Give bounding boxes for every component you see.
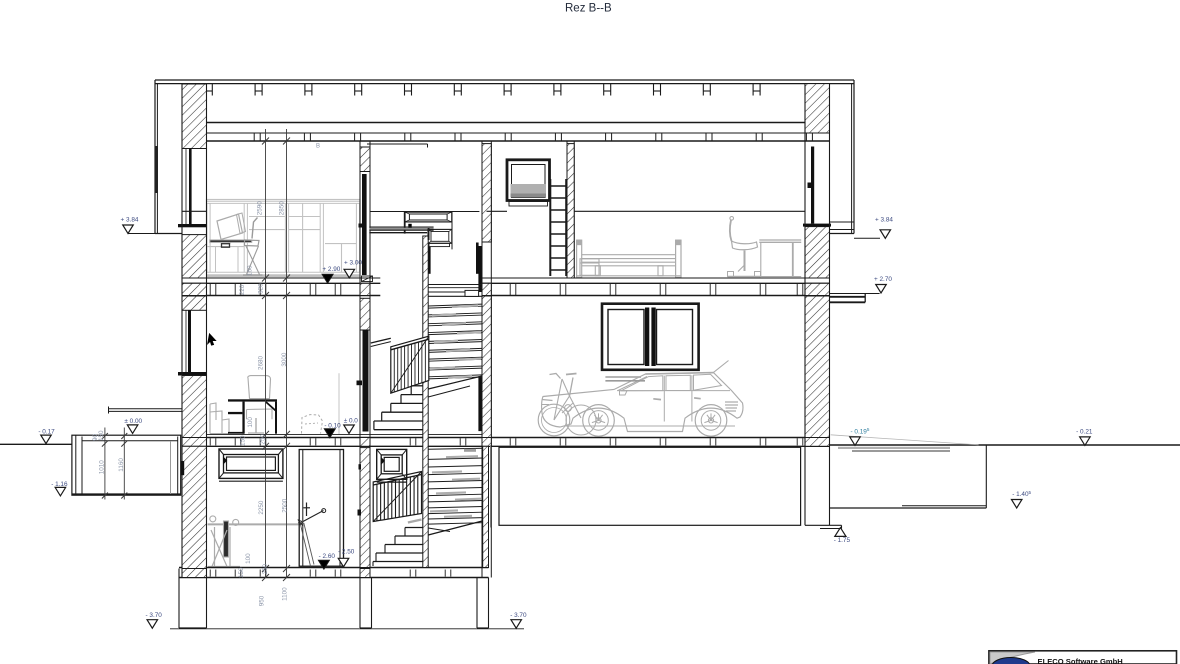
svg-text:250: 250 <box>259 434 266 445</box>
svg-text:250: 250 <box>262 563 269 574</box>
svg-text:150: 150 <box>98 430 105 441</box>
svg-text:+ 3.00: + 3.00 <box>344 260 362 267</box>
svg-text:+ 2.90: + 2.90 <box>322 266 340 273</box>
svg-text:+ 2.70: + 2.70 <box>874 276 892 283</box>
svg-text:± 0.0: ± 0.0 <box>344 418 359 425</box>
svg-text:+ 3.84: + 3.84 <box>875 217 893 224</box>
svg-text:B: B <box>316 144 320 150</box>
svg-text:1100: 1100 <box>281 587 288 601</box>
svg-text:- 0.17: - 0.17 <box>38 428 55 435</box>
svg-text:2680: 2680 <box>258 355 265 370</box>
svg-text:1160: 1160 <box>118 458 125 472</box>
svg-text:- 0.21: - 0.21 <box>1076 428 1093 435</box>
svg-text:2590: 2590 <box>257 201 264 216</box>
svg-text:100: 100 <box>247 417 254 428</box>
svg-text:160: 160 <box>247 265 254 276</box>
svg-text:ELECO Software GmbH: ELECO Software GmbH <box>1038 657 1123 664</box>
svg-text:Rez B--B: Rez B--B <box>565 3 612 15</box>
svg-text:- 2.60: - 2.60 <box>319 553 336 560</box>
svg-text:± 0.00: ± 0.00 <box>124 418 142 425</box>
svg-text:- 3.70: - 3.70 <box>146 612 163 619</box>
svg-text:950: 950 <box>259 595 266 606</box>
svg-text:+ 3.84: + 3.84 <box>121 217 139 224</box>
svg-text:2850: 2850 <box>278 201 285 216</box>
svg-text:100: 100 <box>245 553 252 564</box>
svg-text:1010: 1010 <box>98 460 105 475</box>
svg-text:- 3.70: - 3.70 <box>510 612 527 619</box>
svg-text:320: 320 <box>258 283 265 294</box>
svg-text:2500: 2500 <box>281 498 288 513</box>
svg-text:2250: 2250 <box>258 500 265 515</box>
svg-text:150: 150 <box>240 435 247 446</box>
svg-text:150: 150 <box>238 567 245 578</box>
svg-text:220: 220 <box>239 284 246 295</box>
svg-text:- 2.50: - 2.50 <box>338 548 355 555</box>
svg-text:3000: 3000 <box>281 352 288 367</box>
svg-text:- 1.75: - 1.75 <box>834 537 851 544</box>
